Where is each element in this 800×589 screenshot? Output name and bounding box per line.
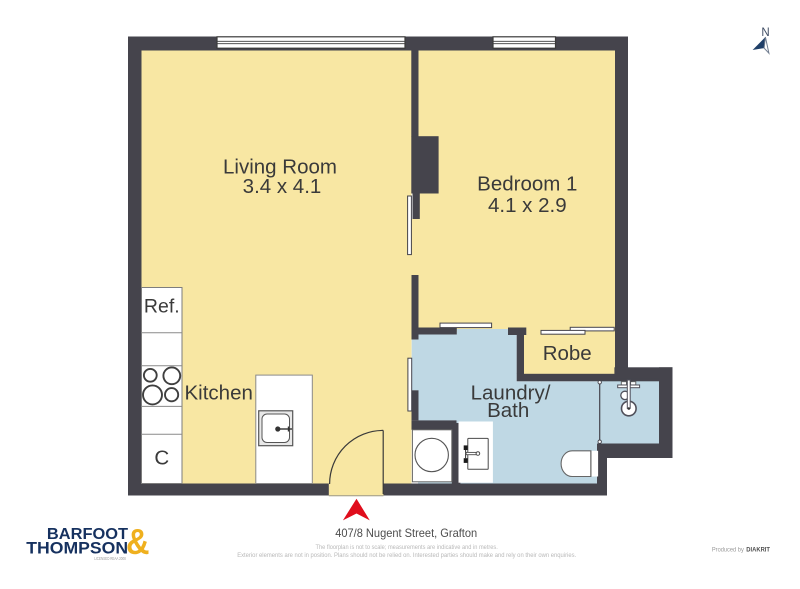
svg-text:C: C xyxy=(154,447,169,470)
svg-text:LICENSED REAA 2008: LICENSED REAA 2008 xyxy=(94,556,126,561)
svg-text:Ref.: Ref. xyxy=(144,296,180,318)
svg-text:Robe: Robe xyxy=(543,342,592,365)
svg-text:The floorplan is not to scale;: The floorplan is not to scale; measureme… xyxy=(316,544,499,551)
svg-text:Bath: Bath xyxy=(487,399,529,422)
svg-text:Bedroom 1: Bedroom 1 xyxy=(477,173,577,196)
svg-text:Exterior elements are not in p: Exterior elements are not in position. P… xyxy=(237,552,576,559)
svg-text:&: & xyxy=(126,521,150,562)
svg-text:DIAKRIT: DIAKRIT xyxy=(746,546,770,553)
svg-text:4.1 x 2.9: 4.1 x 2.9 xyxy=(488,194,567,217)
svg-text:Kitchen: Kitchen xyxy=(185,382,253,405)
svg-text:3.4 x 4.1: 3.4 x 4.1 xyxy=(243,175,322,198)
svg-text:407/8 Nugent Street, Grafton: 407/8 Nugent Street, Grafton xyxy=(335,526,477,540)
svg-text:Produced by: Produced by xyxy=(712,546,745,553)
svg-text:THOMPSON: THOMPSON xyxy=(26,538,128,557)
